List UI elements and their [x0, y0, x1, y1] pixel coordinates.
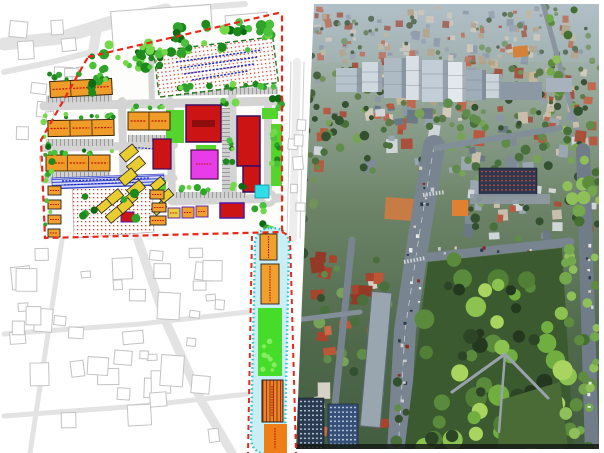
window-dot	[308, 410, 310, 412]
tree	[223, 158, 229, 164]
window-dot	[513, 189, 515, 191]
cadastral-building	[193, 281, 206, 290]
window-dot	[497, 180, 499, 182]
window-dot	[312, 405, 314, 407]
tree	[230, 182, 236, 188]
tree	[262, 344, 266, 348]
window-dot	[304, 433, 306, 435]
tree	[43, 153, 47, 157]
tree	[312, 116, 318, 122]
highrise-tower	[448, 62, 466, 102]
tree	[393, 377, 402, 386]
tree	[206, 187, 211, 192]
window-dot	[521, 189, 523, 191]
tree	[251, 205, 258, 212]
block	[426, 203, 429, 206]
window-dot	[489, 184, 491, 186]
tree	[564, 31, 573, 40]
window-dot	[346, 411, 348, 413]
apartment-tower	[328, 404, 358, 450]
apartment-tower	[298, 398, 324, 450]
block	[375, 109, 385, 117]
window-dot	[509, 184, 511, 186]
window-dot	[529, 171, 531, 173]
tree	[320, 76, 326, 82]
cadastral-building	[291, 184, 298, 193]
tree	[357, 294, 368, 305]
tree	[567, 256, 577, 266]
tower-shade	[482, 70, 486, 100]
planned-building-orange	[48, 215, 61, 224]
block	[587, 393, 590, 396]
block	[554, 201, 562, 207]
window-dot	[354, 425, 356, 427]
aerial-photo	[294, 4, 603, 453]
tree	[592, 168, 600, 176]
tree	[260, 367, 265, 372]
window-dot	[481, 184, 483, 186]
window-dot	[346, 420, 348, 422]
tree	[369, 167, 376, 174]
block	[525, 72, 530, 78]
tree	[65, 77, 69, 81]
tree	[541, 321, 553, 333]
window-dot	[485, 184, 487, 186]
tree	[552, 55, 561, 64]
tree	[518, 271, 535, 288]
window-dot	[338, 407, 340, 409]
tree	[342, 101, 349, 108]
window-dot	[505, 189, 507, 191]
tree	[45, 144, 51, 150]
cadastral-building	[51, 20, 64, 35]
cadastral-building	[189, 248, 203, 257]
tree	[355, 93, 362, 100]
tree	[63, 151, 69, 157]
parking-strip	[176, 192, 246, 198]
block	[423, 183, 426, 185]
window-dot	[334, 411, 336, 413]
block	[591, 305, 594, 309]
window-dot	[304, 437, 306, 439]
window-dot	[485, 189, 487, 191]
window-dot	[493, 171, 495, 173]
cadastral-building	[117, 388, 130, 400]
planned-building-orange	[48, 200, 61, 209]
window-dot	[334, 430, 336, 432]
window-dot	[300, 419, 302, 421]
tree	[82, 193, 89, 200]
tree	[267, 339, 273, 345]
window-dot	[529, 184, 531, 186]
tree	[580, 94, 585, 99]
window-dot	[346, 430, 348, 432]
window-dot	[481, 171, 483, 173]
block	[589, 136, 597, 145]
tree	[590, 332, 599, 341]
block	[403, 381, 406, 383]
window-dot	[300, 414, 302, 416]
tree	[275, 96, 282, 103]
tree	[206, 83, 213, 90]
tree	[433, 416, 446, 429]
window-dot	[312, 410, 314, 412]
tree	[243, 83, 248, 88]
block	[323, 108, 330, 114]
corridor-building-orange	[260, 234, 277, 260]
window-dot	[481, 175, 483, 177]
tower-shade	[357, 68, 362, 92]
window-dot	[513, 184, 515, 186]
block	[496, 115, 504, 122]
block	[315, 251, 326, 262]
window-dot	[346, 407, 348, 409]
block	[438, 247, 441, 250]
tree	[131, 108, 135, 112]
tree	[401, 100, 407, 106]
parking-strip	[46, 139, 114, 146]
tree	[349, 367, 358, 376]
tree	[573, 204, 586, 217]
window-dot	[346, 425, 348, 427]
apartment-tower	[298, 398, 324, 450]
office-slab	[500, 82, 542, 100]
tree	[111, 115, 116, 120]
cadastral-building	[81, 271, 91, 278]
tree	[271, 84, 277, 90]
tree	[245, 47, 251, 53]
tree	[320, 148, 327, 155]
block	[509, 205, 516, 212]
tree	[591, 253, 599, 261]
window-dot	[320, 410, 322, 412]
window-dot	[300, 410, 302, 412]
window-dot	[312, 401, 314, 403]
window-dot	[312, 437, 314, 439]
tree	[90, 114, 94, 118]
window-dot	[493, 184, 495, 186]
block	[431, 188, 434, 192]
window-dot	[312, 428, 314, 430]
block	[587, 269, 590, 271]
tree	[593, 324, 601, 332]
hotel-building	[479, 168, 537, 196]
block	[588, 244, 591, 248]
window-dot	[346, 439, 348, 441]
tree	[389, 120, 393, 124]
window-dot	[304, 414, 306, 416]
window-dot	[505, 184, 507, 186]
window-dot	[493, 180, 495, 182]
tree	[90, 206, 97, 213]
tree	[309, 201, 317, 209]
tree	[468, 206, 473, 211]
cadastral-building	[157, 292, 180, 320]
window-dot	[509, 189, 511, 191]
tower-shade	[402, 58, 406, 98]
tree	[403, 409, 410, 416]
tree	[574, 335, 584, 345]
photo-bottom-edge	[296, 444, 600, 450]
window-dot	[489, 180, 491, 182]
tree	[549, 100, 553, 104]
window-dot	[308, 401, 310, 403]
window-dot	[308, 405, 310, 407]
cadastral-building	[26, 307, 41, 325]
highrise-tower	[466, 70, 486, 100]
window-dot	[334, 439, 336, 441]
block	[573, 121, 580, 127]
window-dot	[320, 424, 322, 426]
window-dot	[485, 180, 487, 182]
window-dot	[342, 416, 344, 418]
cadastral-building	[140, 351, 149, 359]
tower-shade	[443, 60, 448, 102]
cadastral-building	[215, 300, 225, 310]
block	[419, 287, 421, 289]
tree	[513, 330, 525, 342]
window-dot	[308, 437, 310, 439]
tree	[313, 104, 319, 110]
row-housing-orange	[48, 119, 114, 136]
tree	[582, 298, 592, 308]
window-dot	[334, 416, 336, 418]
tree	[564, 317, 574, 327]
highrise-tower	[406, 56, 422, 100]
tree	[457, 124, 464, 131]
planned-building-red	[237, 116, 260, 166]
block	[417, 279, 420, 282]
block	[394, 118, 404, 126]
tree	[181, 39, 189, 47]
window-dot	[521, 171, 523, 173]
planned-building-yellow	[168, 208, 180, 218]
window-dot	[304, 428, 306, 430]
cadastral-building	[70, 360, 85, 377]
cadastral-building	[122, 330, 143, 344]
tree	[419, 346, 432, 359]
tree	[511, 303, 521, 313]
tree	[56, 72, 62, 78]
window-dot	[316, 433, 318, 435]
window-dot	[489, 171, 491, 173]
tree	[545, 14, 553, 22]
window-dot	[316, 414, 318, 416]
window-dot	[312, 414, 314, 416]
tree	[476, 387, 486, 397]
window-dot	[505, 171, 507, 173]
cadastral-building	[16, 127, 28, 140]
block	[329, 255, 337, 263]
planned-building-orange	[48, 229, 60, 237]
tree	[321, 132, 331, 142]
tree	[63, 112, 68, 117]
tree	[472, 116, 481, 125]
tree	[462, 109, 470, 117]
tree	[364, 155, 371, 162]
tree	[317, 294, 325, 302]
window-dot	[320, 442, 322, 444]
window-dot	[350, 420, 352, 422]
tree	[147, 64, 152, 69]
highrise-tower	[422, 60, 448, 102]
window-dot	[316, 419, 318, 421]
window-dot	[320, 428, 322, 430]
cadastral-building	[160, 355, 185, 387]
block	[589, 276, 591, 279]
window-dot	[521, 175, 523, 177]
window-dot	[316, 442, 318, 444]
window-dot	[517, 175, 519, 177]
tree	[515, 236, 521, 242]
window-dot	[346, 416, 348, 418]
tree	[315, 165, 320, 170]
tree	[426, 123, 433, 130]
window-dot	[342, 439, 344, 441]
tree	[464, 156, 472, 164]
tree	[79, 115, 83, 119]
tree	[82, 149, 86, 153]
window-dot	[330, 420, 332, 422]
tree	[472, 223, 479, 230]
block	[545, 112, 552, 118]
tree	[530, 107, 537, 114]
planned-building-orange	[152, 203, 166, 212]
tree	[136, 50, 145, 59]
tree	[451, 364, 468, 381]
window-dot	[350, 425, 352, 427]
cadastral-building	[68, 327, 83, 339]
tree	[48, 151, 52, 155]
tree	[218, 43, 227, 52]
window-dot	[316, 410, 318, 412]
tree	[43, 178, 48, 183]
tree	[471, 104, 478, 111]
tree	[269, 161, 275, 167]
tree	[594, 178, 601, 185]
tree	[539, 143, 547, 151]
window-dot	[485, 171, 487, 173]
apartment-tower	[328, 404, 358, 450]
window-dot	[350, 407, 352, 409]
window-dot	[350, 430, 352, 432]
tree	[564, 244, 575, 255]
window-dot	[330, 407, 332, 409]
tree	[489, 222, 498, 231]
cadastral-building	[61, 412, 76, 427]
tree	[334, 265, 340, 271]
window-dot	[330, 430, 332, 432]
tree	[523, 205, 530, 212]
window-dot	[338, 425, 340, 427]
window-dot	[300, 437, 302, 439]
block	[358, 285, 373, 296]
tree	[48, 210, 52, 214]
cadastral-building	[112, 258, 133, 280]
window-dot	[312, 424, 314, 426]
block	[405, 345, 408, 348]
cadastral-building	[31, 82, 47, 94]
tree	[381, 127, 387, 133]
block	[420, 202, 423, 206]
block	[588, 290, 591, 292]
tree	[387, 142, 393, 148]
tree	[553, 360, 573, 380]
tree	[447, 252, 462, 267]
tree	[578, 371, 588, 381]
window-dot	[533, 189, 535, 191]
window-dot	[308, 424, 310, 426]
tree	[563, 136, 571, 144]
window-dot	[354, 407, 356, 409]
window-dot	[342, 425, 344, 427]
highrise-tower	[336, 68, 362, 92]
tree	[395, 415, 403, 423]
window-dot	[481, 189, 483, 191]
window-dot	[529, 189, 531, 191]
tower-shade	[419, 56, 422, 100]
cadastral-building	[61, 38, 76, 52]
tree	[536, 110, 541, 115]
window-dot	[308, 433, 310, 435]
tree	[580, 156, 589, 165]
tree	[49, 169, 54, 174]
block	[444, 252, 446, 254]
tree	[47, 72, 52, 77]
tree	[187, 185, 192, 190]
row-housing-orange	[46, 155, 110, 171]
window-dot	[533, 180, 535, 182]
window-dot	[513, 171, 515, 173]
tree	[230, 81, 237, 88]
window-dot	[489, 189, 491, 191]
master-plan-map	[4, 4, 314, 453]
block	[497, 250, 499, 253]
window-dot	[525, 175, 527, 177]
cadastral-building	[129, 289, 145, 301]
window-dot	[342, 434, 344, 436]
window-dot	[304, 405, 306, 407]
tree	[490, 315, 504, 329]
window-dot	[312, 442, 314, 444]
tree	[269, 95, 276, 102]
block	[407, 254, 409, 256]
block	[423, 187, 425, 189]
building-label-band	[192, 120, 215, 127]
tree	[49, 158, 56, 165]
tree	[263, 27, 273, 37]
window-dot	[493, 189, 495, 191]
tree	[569, 428, 580, 439]
tree	[313, 72, 321, 80]
hotel-plaza	[470, 194, 550, 204]
window-dot	[316, 437, 318, 439]
tree	[478, 283, 492, 297]
tree	[336, 143, 344, 151]
cadastral-building	[35, 248, 48, 260]
window-dot	[304, 419, 306, 421]
orange-roof-building	[452, 200, 468, 216]
window-dot	[320, 433, 322, 435]
cadastral-building	[54, 315, 67, 325]
window-dot	[350, 411, 352, 413]
tree	[468, 411, 481, 424]
tree	[323, 355, 332, 364]
tree	[130, 189, 139, 198]
window-dot	[308, 414, 310, 416]
window-dot	[334, 425, 336, 427]
block	[469, 147, 476, 154]
